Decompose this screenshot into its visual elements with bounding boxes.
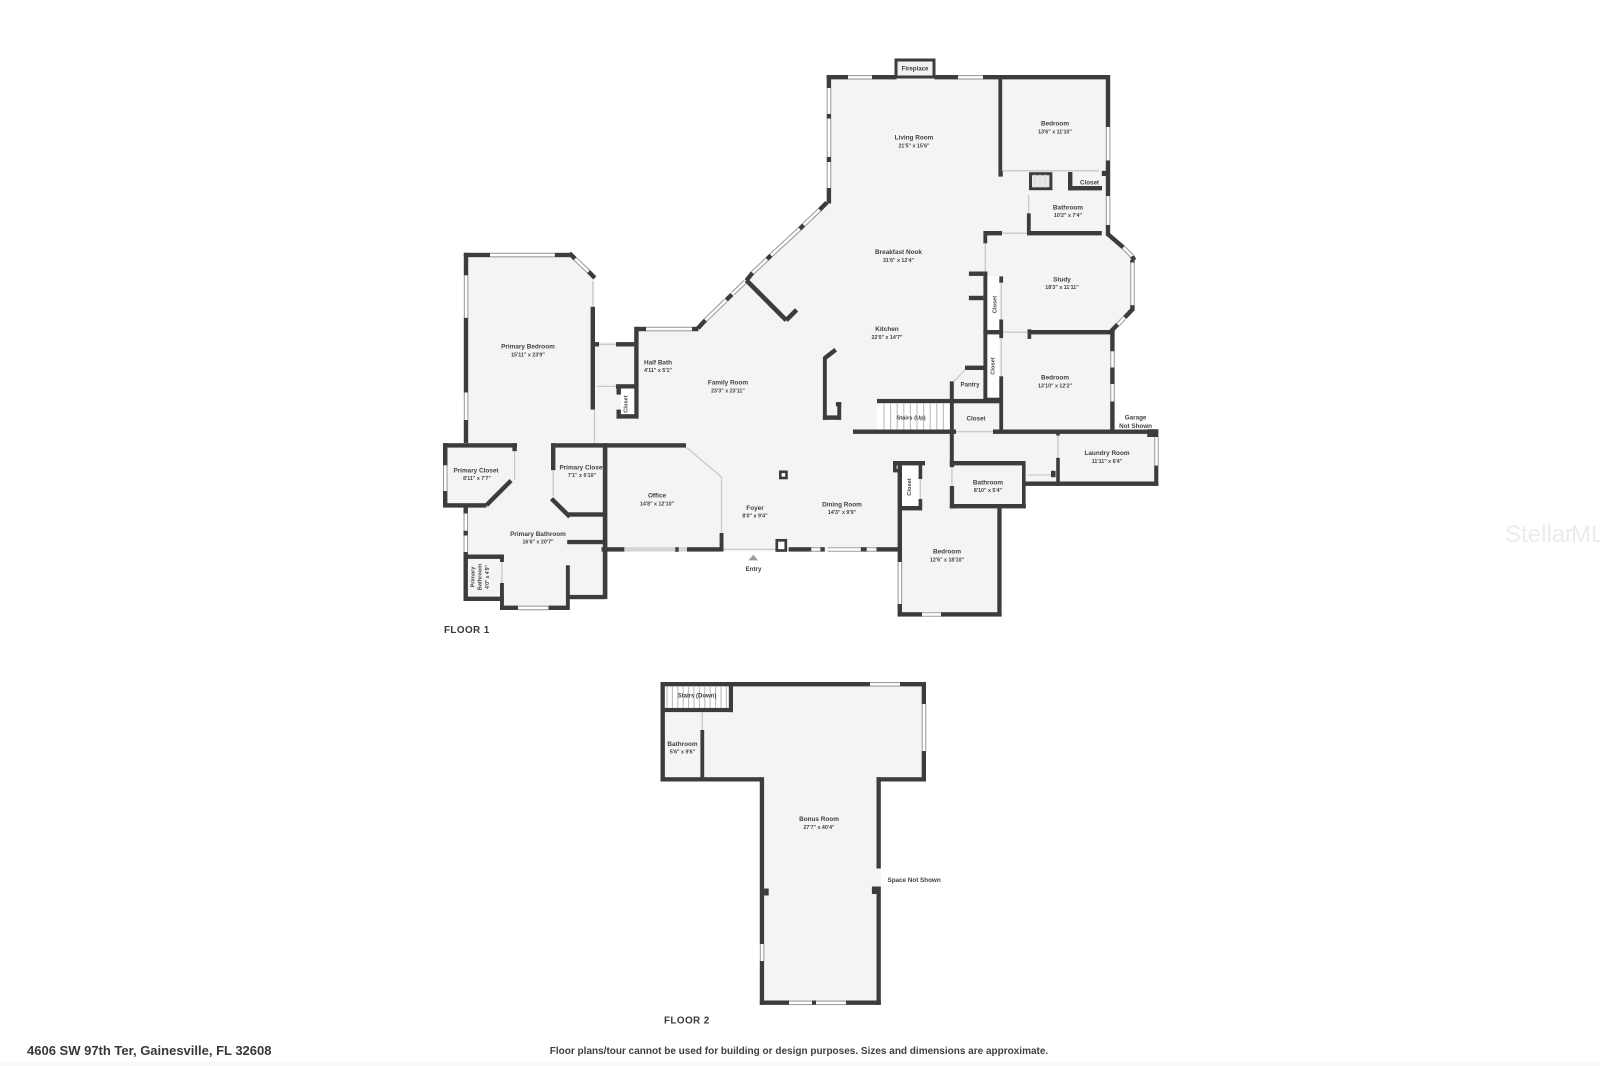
svg-text:Bedroom: Bedroom: [933, 549, 961, 556]
svg-text:Stairs (Down): Stairs (Down): [678, 693, 717, 699]
svg-text:Primary Bathroom: Primary Bathroom: [510, 531, 566, 538]
svg-text:Bedroom: Bedroom: [1041, 121, 1069, 128]
svg-text:Primary Closet: Primary Closet: [559, 465, 605, 472]
svg-text:Space Not Shown: Space Not Shown: [888, 877, 941, 884]
svg-text:Fireplace: Fireplace: [902, 66, 929, 73]
svg-text:Garage: Garage: [1125, 414, 1147, 421]
svg-text:11'11" x 6'4": 11'11" x 6'4": [1092, 459, 1123, 465]
svg-text:Living Room: Living Room: [895, 135, 934, 142]
svg-text:22'0" x 14'7": 22'0" x 14'7": [871, 335, 903, 341]
svg-text:Closet: Closet: [992, 296, 998, 313]
svg-text:Half Bath: Half Bath: [644, 359, 672, 366]
svg-text:Study: Study: [1053, 277, 1071, 284]
svg-text:Primary Closet: Primary Closet: [453, 468, 499, 475]
svg-text:Closet: Closet: [1080, 180, 1099, 187]
svg-text:Pantry: Pantry: [961, 382, 981, 389]
svg-text:Bathroom: Bathroom: [667, 741, 697, 748]
svg-text:FLOOR 1: FLOOR 1: [444, 625, 490, 636]
svg-text:Primary: Primary: [471, 566, 477, 588]
svg-text:Bathroom: Bathroom: [973, 480, 1003, 487]
svg-text:Family Room: Family Room: [708, 380, 748, 387]
svg-text:Kitchen: Kitchen: [875, 326, 899, 333]
svg-text:23'3" x 23'11": 23'3" x 23'11": [711, 388, 745, 394]
svg-text:Not Shown: Not Shown: [1119, 423, 1152, 430]
svg-text:Floor plans/tour cannot be use: Floor plans/tour cannot be used for buil…: [550, 1046, 1049, 1057]
svg-text:21'5" x 15'6": 21'5" x 15'6": [898, 143, 930, 149]
svg-text:Bedroom: Bedroom: [1041, 375, 1069, 382]
svg-text:27'7" x 40'4": 27'7" x 40'4": [803, 825, 835, 831]
svg-text:Closet: Closet: [967, 416, 986, 423]
svg-text:FLOOR 2: FLOOR 2: [664, 1016, 710, 1027]
svg-text:8'11" x 7'7": 8'11" x 7'7": [463, 476, 491, 482]
svg-text:Stellar: Stellar: [1505, 521, 1573, 548]
svg-text:Laundry Room: Laundry Room: [1084, 450, 1129, 457]
svg-text:31'6" x 12'4": 31'6" x 12'4": [883, 258, 915, 264]
svg-text:12'6" x 18'10": 12'6" x 18'10": [930, 557, 965, 563]
svg-text:Primary Bedroom: Primary Bedroom: [501, 344, 555, 351]
svg-text:13'6" x 11'10": 13'6" x 11'10": [1038, 129, 1072, 135]
svg-text:8'10" x 5'4": 8'10" x 5'4": [974, 488, 1003, 494]
svg-text:Foyer: Foyer: [746, 505, 764, 512]
svg-text:Bonus Room: Bonus Room: [799, 816, 839, 823]
svg-text:Bathroom: Bathroom: [478, 564, 484, 590]
svg-text:16'6" x 20'7": 16'6" x 20'7": [522, 540, 554, 546]
svg-text:4'11" x 5'1": 4'11" x 5'1": [644, 368, 672, 374]
svg-text:Breakfast Nook: Breakfast Nook: [875, 249, 922, 256]
svg-text:4'0" x 4'9": 4'0" x 4'9": [485, 564, 491, 588]
svg-text:Closet: Closet: [907, 478, 913, 495]
svg-text:Entry: Entry: [746, 566, 762, 573]
svg-text:MLS: MLS: [1571, 521, 1600, 548]
svg-text:18'3" x 11'11": 18'3" x 11'11": [1045, 285, 1079, 291]
svg-text:5'6" x 9'6": 5'6" x 9'6": [670, 749, 696, 755]
svg-text:14'3" x 9'9": 14'3" x 9'9": [828, 510, 857, 516]
svg-text:13'10" x 12'2": 13'10" x 12'2": [1038, 383, 1073, 389]
svg-text:Dining Room: Dining Room: [822, 501, 862, 508]
svg-text:14'8" x 12'10": 14'8" x 12'10": [640, 501, 675, 507]
svg-text:4606 SW 97th Ter, Gainesville,: 4606 SW 97th Ter, Gainesville, FL 32608: [27, 1043, 271, 1058]
svg-text:7'1" x 6'10": 7'1" x 6'10": [568, 473, 597, 479]
svg-text:Closet: Closet: [990, 357, 996, 374]
svg-text:Bathroom: Bathroom: [1053, 205, 1083, 212]
svg-text:Stairs (Up): Stairs (Up): [896, 415, 925, 421]
svg-text:10'2" x 7'4": 10'2" x 7'4": [1054, 213, 1083, 219]
svg-text:8'0" x 9'4": 8'0" x 9'4": [742, 514, 768, 520]
svg-text:15'11" x 23'9": 15'11" x 23'9": [511, 352, 545, 358]
svg-text:Office: Office: [648, 493, 667, 500]
svg-text:Closet: Closet: [624, 395, 630, 412]
